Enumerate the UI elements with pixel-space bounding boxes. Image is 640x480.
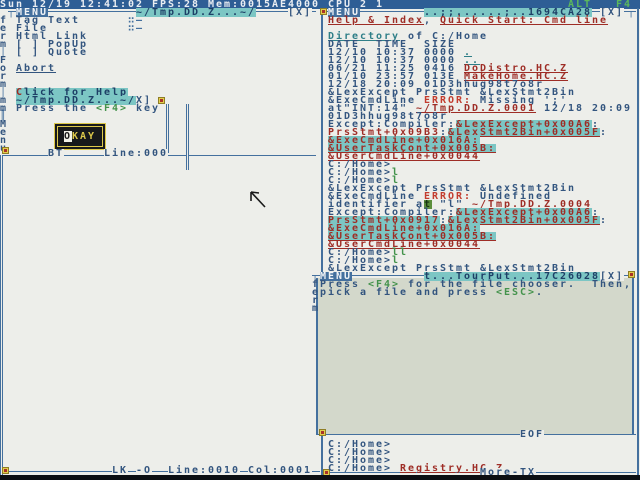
mini-window-border	[166, 104, 169, 153]
window-corner: ┐	[628, 8, 636, 17]
handle-dot	[4, 469, 7, 472]
tour-hint-text: pick a file and press	[320, 288, 488, 297]
mouse-cursor	[248, 190, 268, 216]
help-hint-text: key	[136, 104, 160, 113]
shell-prompt: C:/Home>	[328, 464, 392, 473]
border-flags: BT	[48, 149, 64, 158]
menu-line-indicator: Line:000	[104, 149, 168, 158]
tree-widget: ∷—	[128, 24, 144, 33]
tour-hint-text: Then,	[592, 280, 632, 289]
f4-key-hint: <F4>	[96, 104, 128, 113]
column-indicator: Col:0001	[248, 466, 312, 475]
button-label: KAY	[72, 131, 96, 142]
tour-window-background	[317, 278, 632, 434]
help-hint-text: Press the	[16, 104, 96, 113]
handle-dot	[4, 149, 7, 152]
link-help-and-index[interactable]: Help & Index	[328, 16, 424, 25]
tour-corner-handle[interactable]	[319, 429, 326, 436]
menu-corner-handle[interactable]	[2, 147, 9, 154]
window-corner: ┌	[8, 8, 16, 17]
terminal-title-handle[interactable]	[320, 8, 327, 15]
handle-dot	[322, 10, 325, 13]
line-indicator: Line:0010	[168, 466, 240, 475]
eof-marker: EOF	[520, 430, 544, 439]
link-quick-start-cmd-line[interactable]: Quick Start: Cmd line	[440, 16, 608, 25]
menu-item-quote-checkbox[interactable]: [ ] Quote	[16, 48, 88, 57]
menu-window-close[interactable]: [X]	[288, 8, 312, 17]
separator: ,	[424, 16, 432, 25]
underlying-text: m	[312, 304, 320, 313]
handle-dot	[321, 431, 324, 434]
esc-key-hint: <ESC>	[496, 288, 536, 297]
templeos-desktop: Sun 12/19 12:41:02 FPS:28 Mem:0015AE4000…	[0, 0, 640, 480]
handle-dot	[160, 99, 163, 102]
lock-flags: LK	[112, 466, 128, 475]
menu-window-doc-title: ~/Tmp.DD.Z...~/	[136, 8, 256, 17]
okay-button[interactable]: OKAY	[54, 123, 106, 150]
button-hotkey: O	[64, 131, 72, 142]
tour-title-handle[interactable]	[628, 271, 635, 278]
error-timestamp: 12/18 20:09	[544, 104, 632, 113]
tour-hint-text: .	[536, 288, 544, 297]
overwrite-flag: -O	[136, 466, 152, 475]
handle-dot	[630, 273, 633, 276]
menu-item-abort[interactable]: Abort	[16, 64, 56, 73]
tour-right-border	[632, 272, 634, 434]
terminal-right-border	[637, 8, 639, 475]
editor-left-border	[0, 155, 3, 475]
separator: :	[600, 128, 608, 137]
bottom-black-strip	[0, 475, 640, 480]
separator: :	[600, 216, 608, 225]
editor-corner-handle[interactable]	[2, 467, 9, 474]
tour-bottom-border	[316, 434, 636, 435]
mini-window-border-2	[186, 104, 189, 170]
